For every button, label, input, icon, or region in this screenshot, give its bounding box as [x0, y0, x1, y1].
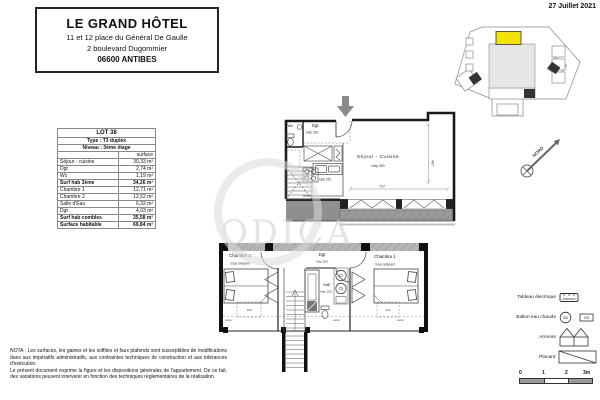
row-label: Surf hab 3ème: [58, 180, 119, 187]
table-row: Chambre 112,71 m²: [58, 187, 156, 194]
scale-tick-1: 1: [542, 370, 545, 376]
dim-width-label: 707: [379, 185, 385, 189]
row-value: 30,33 m²: [119, 159, 156, 166]
row-value: 6,32 m²: [119, 201, 156, 208]
wardrobe-icon: [559, 327, 591, 348]
wardrobe-chambre2: [265, 272, 278, 303]
lot-level-row: Niveau : 3ème étage: [58, 145, 156, 152]
velux-label-2: velux: [333, 318, 340, 322]
lot-table: LOT 38 Type : T3 duplex Niveau : 3ème ét…: [57, 128, 156, 229]
lot-number: LOT 38: [58, 129, 156, 138]
sde-height: hsfp 250: [320, 290, 332, 294]
hotel-name: LE GRAND HÔTEL: [66, 16, 187, 31]
row-label: Chambre 2: [58, 194, 119, 201]
scale-segment: [568, 379, 592, 383]
water-heater-icon: 300 200: [559, 311, 597, 324]
watermark-text: ODICA: [220, 213, 354, 253]
stairs-lower: [284, 268, 305, 332]
highlighted-lot: [496, 32, 521, 45]
row-value: 69,84 m²: [119, 222, 156, 229]
wc-label: Wc: [288, 123, 294, 128]
address-line2: 2 boulevard Dugommier: [87, 44, 167, 53]
table-subtotal-row: Surf hab 3ème34,26 m²: [58, 180, 156, 187]
water-heater-200: 200: [584, 316, 590, 320]
velux-dim-right: 124: [385, 308, 390, 312]
north-arrow: NORD: [521, 139, 560, 177]
legend-closet: Placard: [498, 350, 598, 365]
closet-icon: [558, 350, 598, 365]
legend-water-heater: Ballon eau chaude 300 200: [498, 311, 598, 324]
electrical-panel-icon: [559, 292, 581, 303]
row-value: 4,03 m²: [119, 208, 156, 215]
row-value: 1,19 m²: [119, 173, 156, 180]
table-row: Dgt2,74 m²: [58, 166, 156, 173]
shower: [305, 270, 319, 312]
row-label: Dgt: [58, 208, 119, 215]
dgt-height-lower: hsfp 250: [316, 260, 328, 264]
row-label: Wc: [58, 173, 119, 180]
chambre1-note: sous rampant: [375, 263, 394, 267]
legend-electrical-label: Tableau électrique: [498, 295, 556, 300]
table-row: Wc1,19 m²: [58, 173, 156, 180]
row-value: 2,74 m²: [119, 166, 156, 173]
row-label: Dgt: [58, 166, 119, 173]
scale-segment: [544, 379, 568, 383]
lot-type: Type : T3 duplex: [58, 138, 156, 145]
stairs-stub: [286, 336, 304, 368]
legend-water-heater-label: Ballon eau chaude: [498, 315, 556, 320]
sejour-height: hsfp 260: [371, 164, 384, 168]
legend-wardrobe: Armoire: [498, 327, 598, 348]
chambre1-label: Chambre 1: [374, 254, 396, 259]
velux-dim-left: 169: [246, 308, 251, 312]
bed-chambre2: [224, 269, 268, 303]
table-row: Salle d'Eau6,32 m²: [58, 201, 156, 208]
scale-bar-segments: [519, 378, 593, 384]
nota-line2: Le présent document exprime la figure et…: [10, 368, 227, 381]
table-row: Dgt4,03 m²: [58, 208, 156, 215]
row-label: Chambre 1: [58, 187, 119, 194]
dgt-height-upper: hsfp 250: [306, 131, 318, 135]
row-value: 35,58 m²: [119, 215, 156, 222]
washbasin-ballon: [334, 268, 348, 304]
row-value: 12,71 m²: [119, 187, 156, 194]
legend-closet-label: Placard: [498, 355, 555, 360]
plan-upper-level: Wc Dgt hsfp 250 hsfp 250 Séjour - Cuisin…: [286, 96, 455, 226]
water-heater-300: 300: [563, 316, 569, 320]
sejour-label: Séjour - Cuisine: [357, 154, 399, 159]
document-date: 27 Juillet 2021: [549, 3, 596, 10]
scale-bar: 0 1 2 3m: [519, 370, 595, 384]
row-label: Salle d'Eau: [58, 201, 119, 208]
table-total-row: Surface habitable69,84 m²: [58, 222, 156, 229]
plan-sheet: LE GRAND HÔTEL 11 et 12 place du Général…: [0, 0, 600, 400]
table-row: Séjour - cuisine30,33 m²: [58, 159, 156, 166]
chambre2-note: sous rampant: [230, 262, 249, 266]
scale-tick-0: 0: [519, 370, 522, 376]
dgt-label-upper: Dgt: [312, 123, 319, 128]
scale-tick-3: 3m: [583, 370, 590, 376]
legend-wardrobe-label: Armoire: [498, 335, 556, 340]
row-label: Surf hab combles: [58, 215, 119, 222]
scale-tick-2: 2: [565, 370, 568, 376]
legend-electrical-panel: Tableau électrique: [498, 292, 598, 303]
site-key-plan: [455, 27, 580, 116]
table-header-row: surface: [58, 152, 156, 159]
address-city: 06600 ANTIBES: [97, 55, 156, 64]
table-row: Chambre 212,52 m²: [58, 194, 156, 201]
table-subtotal-row: Surf hab combles35,58 m²: [58, 215, 156, 222]
nota-line1: NOTA : Les surfaces, les gaines et les s…: [10, 348, 227, 368]
lot-type-row: Type : T3 duplex: [58, 138, 156, 145]
row-label: Surface habitable: [58, 222, 119, 229]
scale-segment: [520, 379, 544, 383]
sde-label: SdE: [323, 283, 331, 287]
row-label: Séjour - cuisine: [58, 159, 119, 166]
bed-chambre1: [374, 269, 418, 303]
entrance-arrow: [337, 96, 354, 117]
dim-height-label: 467: [431, 160, 435, 166]
row-value: 12,52 m²: [119, 194, 156, 201]
velux-label-3: velux: [397, 318, 404, 322]
entry-closet: [304, 146, 342, 161]
lot-title-row: LOT 38: [58, 129, 156, 138]
title-block: LE GRAND HÔTEL 11 et 12 place du Général…: [35, 7, 219, 73]
row-value: 34,26 m²: [119, 180, 156, 187]
kitchen-height: hsfp 250: [319, 178, 331, 182]
scale-labels: 0 1 2 3m: [519, 370, 595, 378]
wardrobe-chambre1: [352, 272, 365, 303]
address-line1: 11 et 12 place du Général De Gaulle: [66, 33, 187, 42]
nota-block: NOTA : Les surfaces, les gaines et les s…: [10, 348, 227, 381]
lot-level: Niveau : 3ème étage: [58, 145, 156, 152]
surface-header: surface: [119, 152, 156, 159]
velux-label-1: velux: [225, 318, 232, 322]
